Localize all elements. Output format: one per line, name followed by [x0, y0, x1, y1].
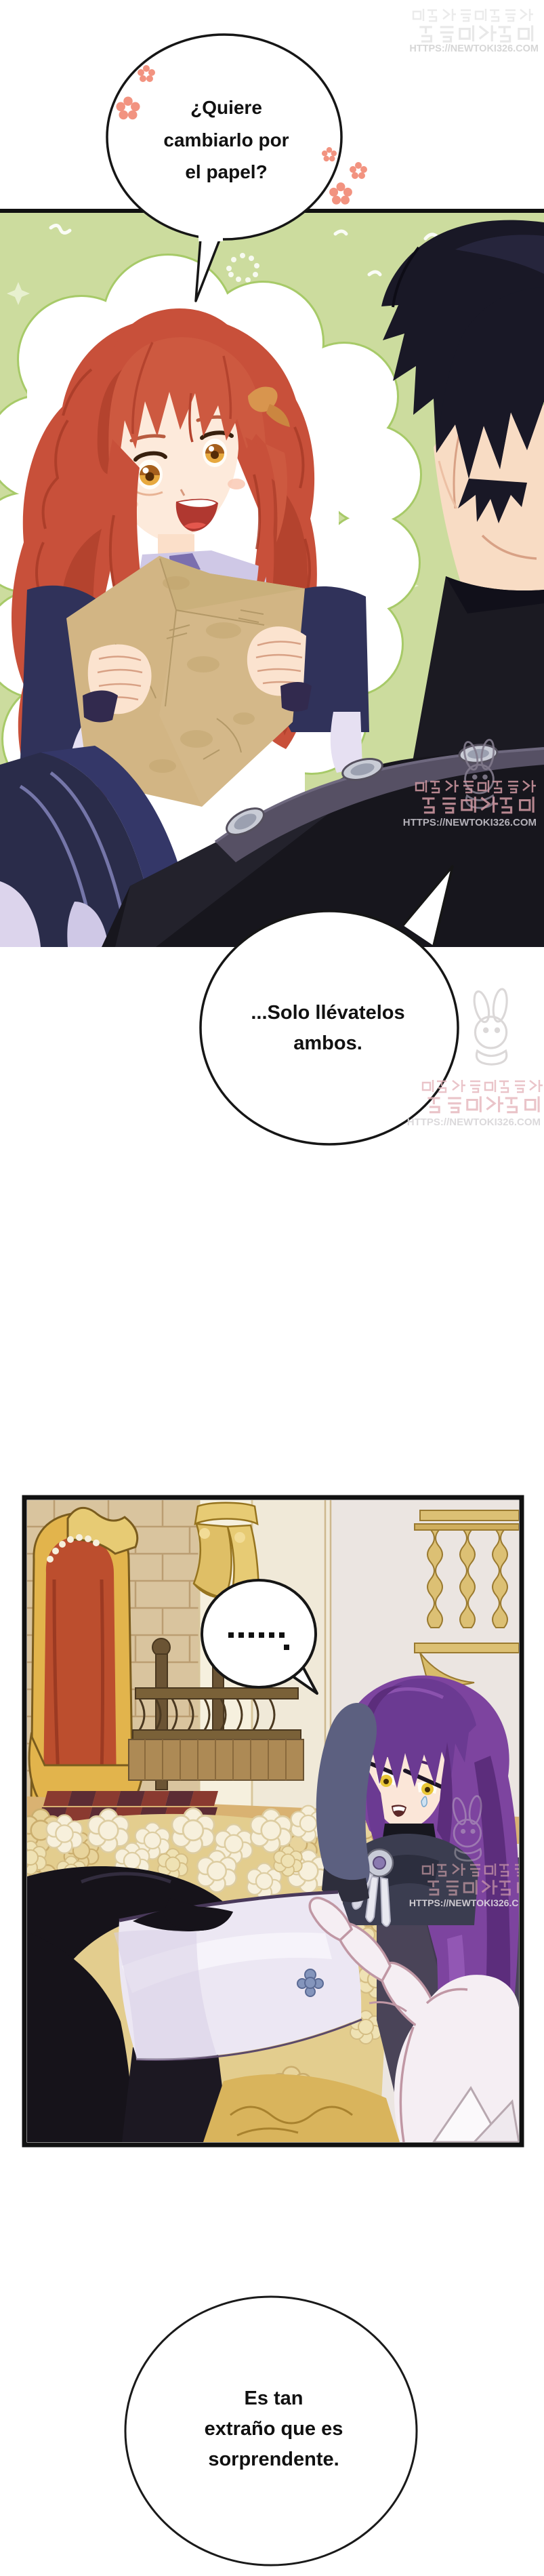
svg-text:Es tan: Es tan: [244, 2388, 303, 2409]
svg-text:extraño que es: extraño que es: [205, 2418, 343, 2440]
svg-text:HTTPS://NEWTOKI326.COM: HTTPS://NEWTOKI326.COM: [407, 1116, 541, 1128]
svg-text:ambos.: ambos.: [293, 1032, 362, 1054]
svg-text:cambiarlo por: cambiarlo por: [163, 129, 289, 150]
svg-text:HTTPS://NEWTOKI326.COM: HTTPS://NEWTOKI326.COM: [403, 817, 537, 828]
svg-text:HTTPS://NEWTOKI326.COM: HTTPS://NEWTOKI326.COM: [409, 1897, 534, 1908]
svg-text:sorprendente.: sorprendente.: [208, 2449, 339, 2470]
svg-text:el papel?: el papel?: [185, 161, 267, 182]
svg-text:HTTPS://NEWTOKI326.COM: HTTPS://NEWTOKI326.COM: [409, 43, 539, 54]
svg-text:...Solo llévatelos: ...Solo llévatelos: [251, 1002, 404, 1024]
svg-text:¿Quiere: ¿Quiere: [190, 97, 262, 118]
